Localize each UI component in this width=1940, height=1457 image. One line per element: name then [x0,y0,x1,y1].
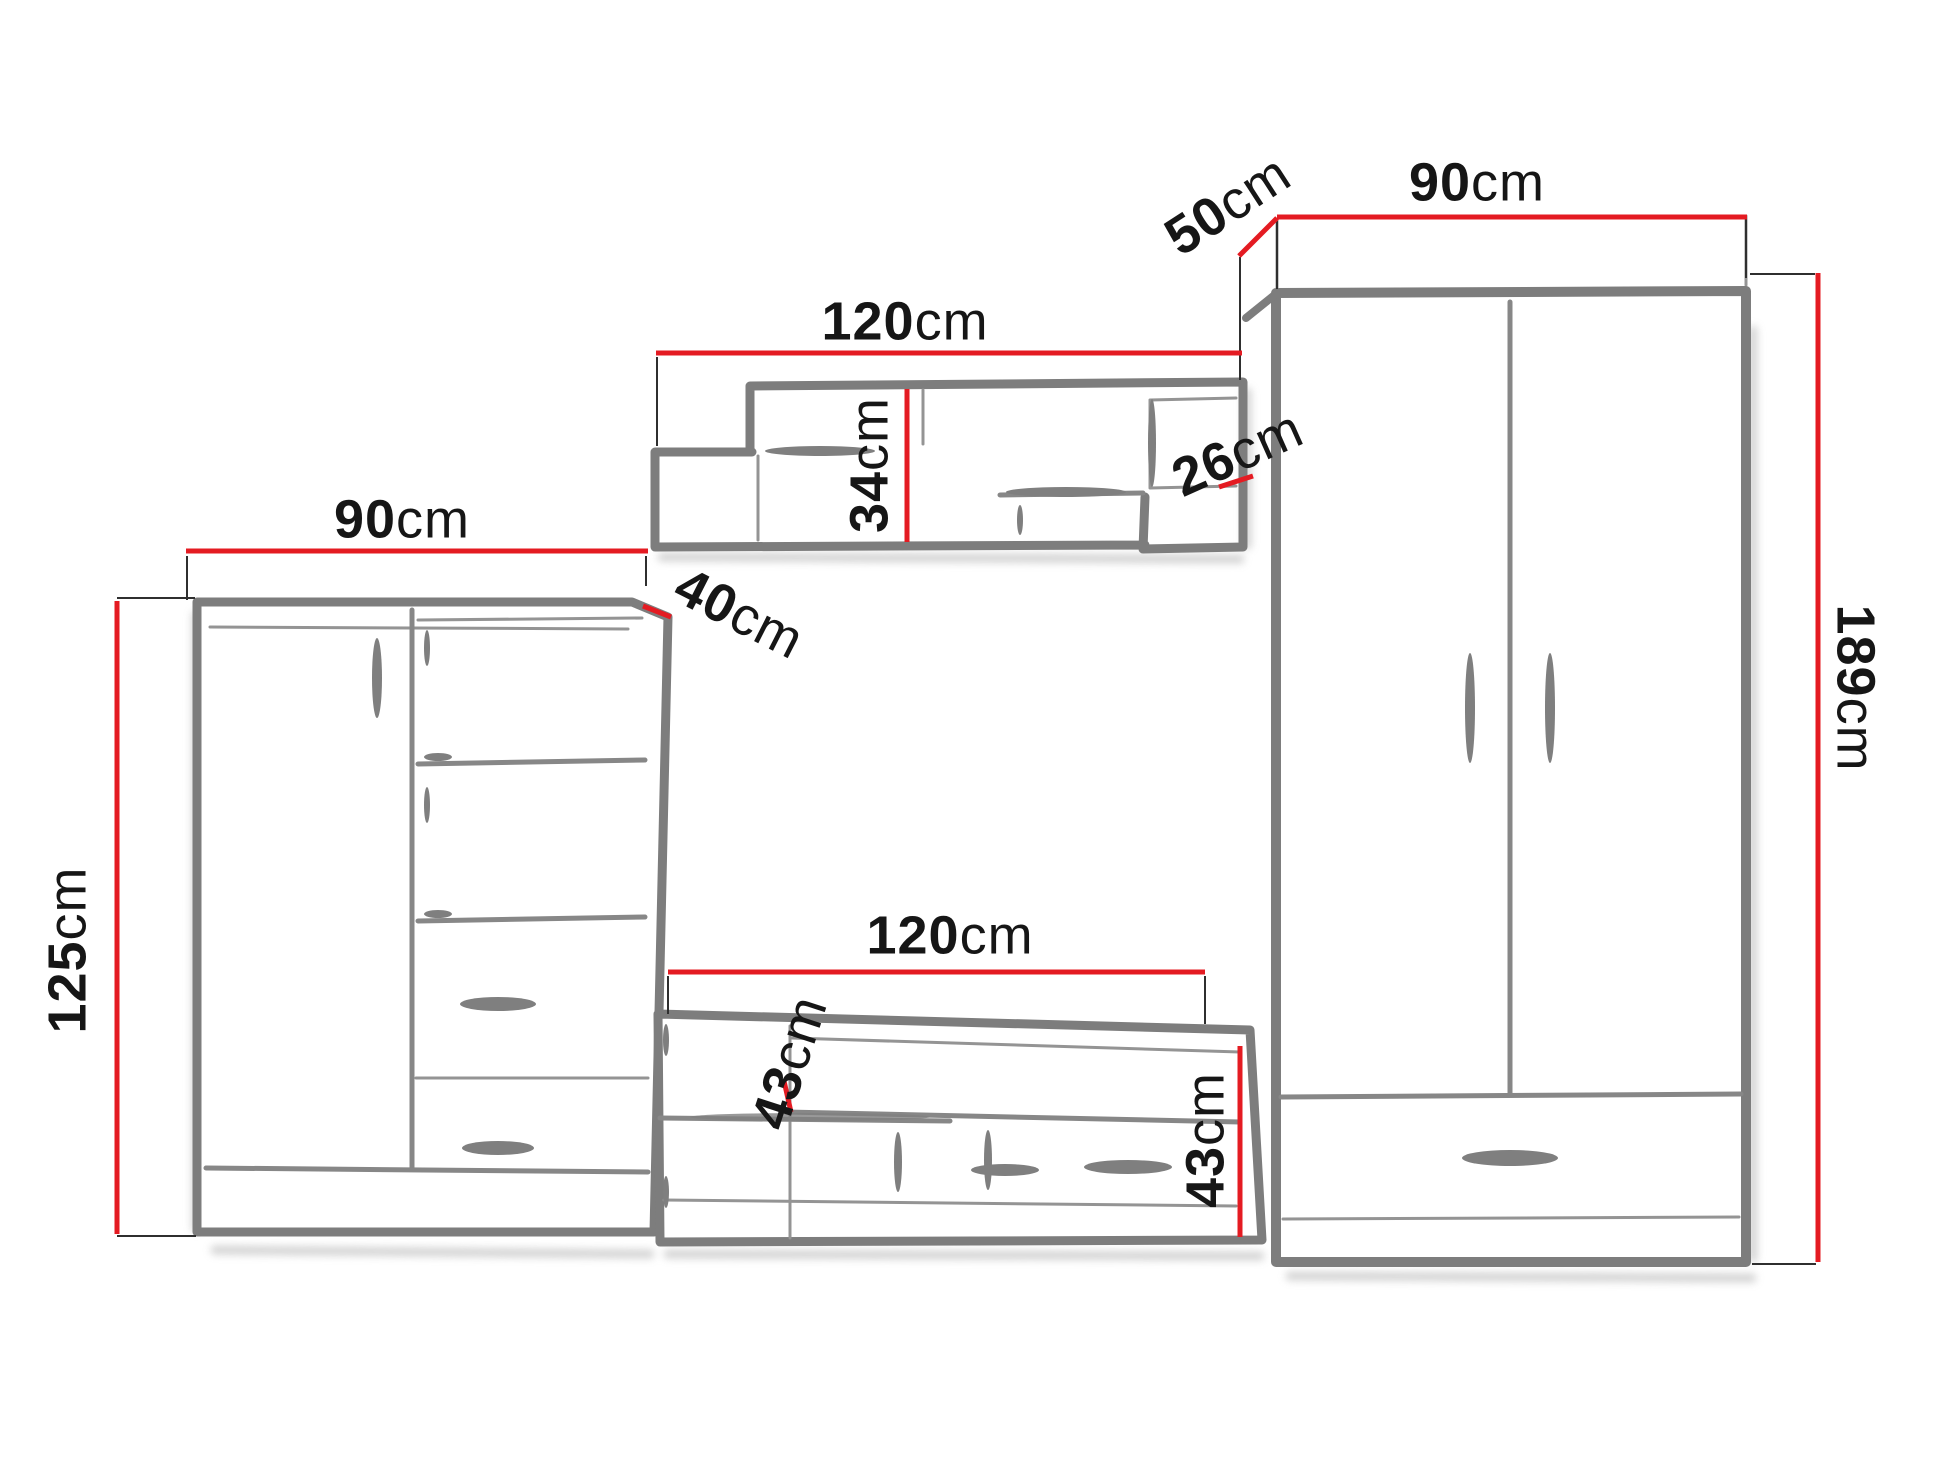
label-tv-bench-height: 43cm [1175,1072,1235,1208]
wardrobe-drawer-handle [1462,1150,1558,1166]
tv-bench-divider-tick-2 [984,1130,992,1190]
left-cabinet [197,602,668,1232]
label-left-cabinet-depth: 40cm [665,556,813,671]
left-cabinet-door-handle [372,638,382,718]
label-wardrobe-width: 90cm [1409,152,1545,212]
tv-bench-corner-tick-2 [663,1176,669,1208]
wardrobe-door-handle-right [1545,653,1555,763]
tv-bench-corner-tick-1 [663,1024,669,1056]
label-wardrobe-height: 189cm [1826,604,1886,771]
label-wall-shelf-width: 120cm [821,291,988,351]
furniture-dimension-diagram: 90cm 125cm 40cm 120cm 34cm 50cm 90cm 26c… [0,0,1940,1457]
left-cabinet-top-inner-line [210,627,628,629]
label-left-cabinet-width: 90cm [334,489,470,549]
wall-shelf-shading-2 [1006,487,1126,497]
wall-shelf-unit [655,382,1243,549]
wall-shelf-handle-tick [1017,505,1023,535]
tv-bench-divider-tick-1 [894,1132,902,1192]
wall-shelf-shadow [662,557,1240,559]
wardrobe [1246,216,1746,1262]
tv-bench-drawer-handle-2 [1084,1160,1172,1174]
left-cabinet-shelf-corner-mark-1 [424,753,452,761]
wardrobe-drawer-bottom-line [1283,1217,1739,1219]
tv-bench-mid-shading [690,1113,930,1121]
wardrobe-door-handle-left [1465,653,1475,763]
label-tv-bench-width: 120cm [866,905,1033,965]
tv-bench-drawer-handle-1 [971,1164,1039,1176]
left-cabinet-drawer-handle-1 [460,997,536,1011]
left-cabinet-shelf-top-line [418,618,642,620]
left-cabinet-drawer-handle-2 [462,1141,534,1155]
label-wall-shelf-height: 34cm [839,397,899,533]
left-cabinet-corner-tick-1 [424,630,430,666]
tv-bench-body [658,1014,1262,1242]
wardrobe-shadow [1290,1276,1752,1278]
wall-shelf-end-box-shading [1148,399,1156,487]
left-cabinet-shadow [215,1250,650,1254]
wardrobe-top-face-edges [1277,216,1746,289]
left-cabinet-shelf-corner-mark-2 [424,910,452,918]
diagram-canvas: 90cm 125cm 40cm 120cm 34cm 50cm 90cm 26c… [0,0,1940,1457]
tv-bench-shadow [668,1254,1260,1256]
left-cabinet-corner-tick-2 [424,787,430,823]
label-left-cabinet-height: 125cm [37,866,97,1033]
wardrobe-drawer-top-line [1281,1094,1741,1097]
label-wardrobe-depth: 50cm [1154,143,1301,267]
tv-bench [658,1014,1262,1242]
